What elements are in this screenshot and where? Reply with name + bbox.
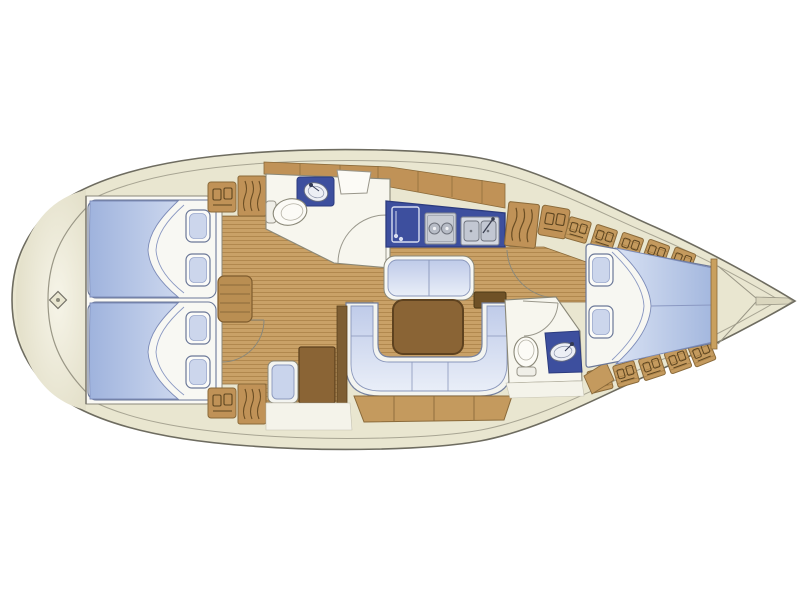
pillow [186, 356, 210, 388]
pillow [186, 254, 210, 286]
pillow [186, 210, 210, 242]
hull-locker-band [354, 396, 512, 422]
navigator-seat [268, 361, 298, 403]
pillow [589, 254, 613, 286]
saloon-table [393, 300, 463, 354]
pillow [589, 306, 613, 338]
dresser-steps [218, 276, 252, 322]
hanging-locker-icon [238, 384, 266, 424]
aft-vanity [545, 331, 582, 373]
aft-head-sole-white [506, 381, 584, 398]
stern-centerline-spine [756, 297, 793, 305]
yacht-floorplan-svg [0, 0, 800, 600]
shelf-locker-icon [208, 388, 236, 418]
forward-cabin [86, 176, 266, 424]
chart-table [299, 347, 335, 403]
hanging-locker-icon [504, 202, 539, 249]
stove-two-burner-icon [425, 213, 456, 244]
shelf-locker-icon [208, 182, 236, 212]
counter-seat [337, 170, 371, 194]
nav-sole-white [266, 403, 352, 430]
aft-toilet [514, 337, 538, 376]
hanging-locker-icon [238, 176, 266, 216]
pillow [186, 312, 210, 344]
yacht-layout-diagram [0, 0, 800, 600]
forward-bench [384, 256, 474, 300]
double-sink-icon [461, 217, 499, 245]
berth-end-board [711, 259, 717, 349]
foredeck [16, 190, 86, 410]
